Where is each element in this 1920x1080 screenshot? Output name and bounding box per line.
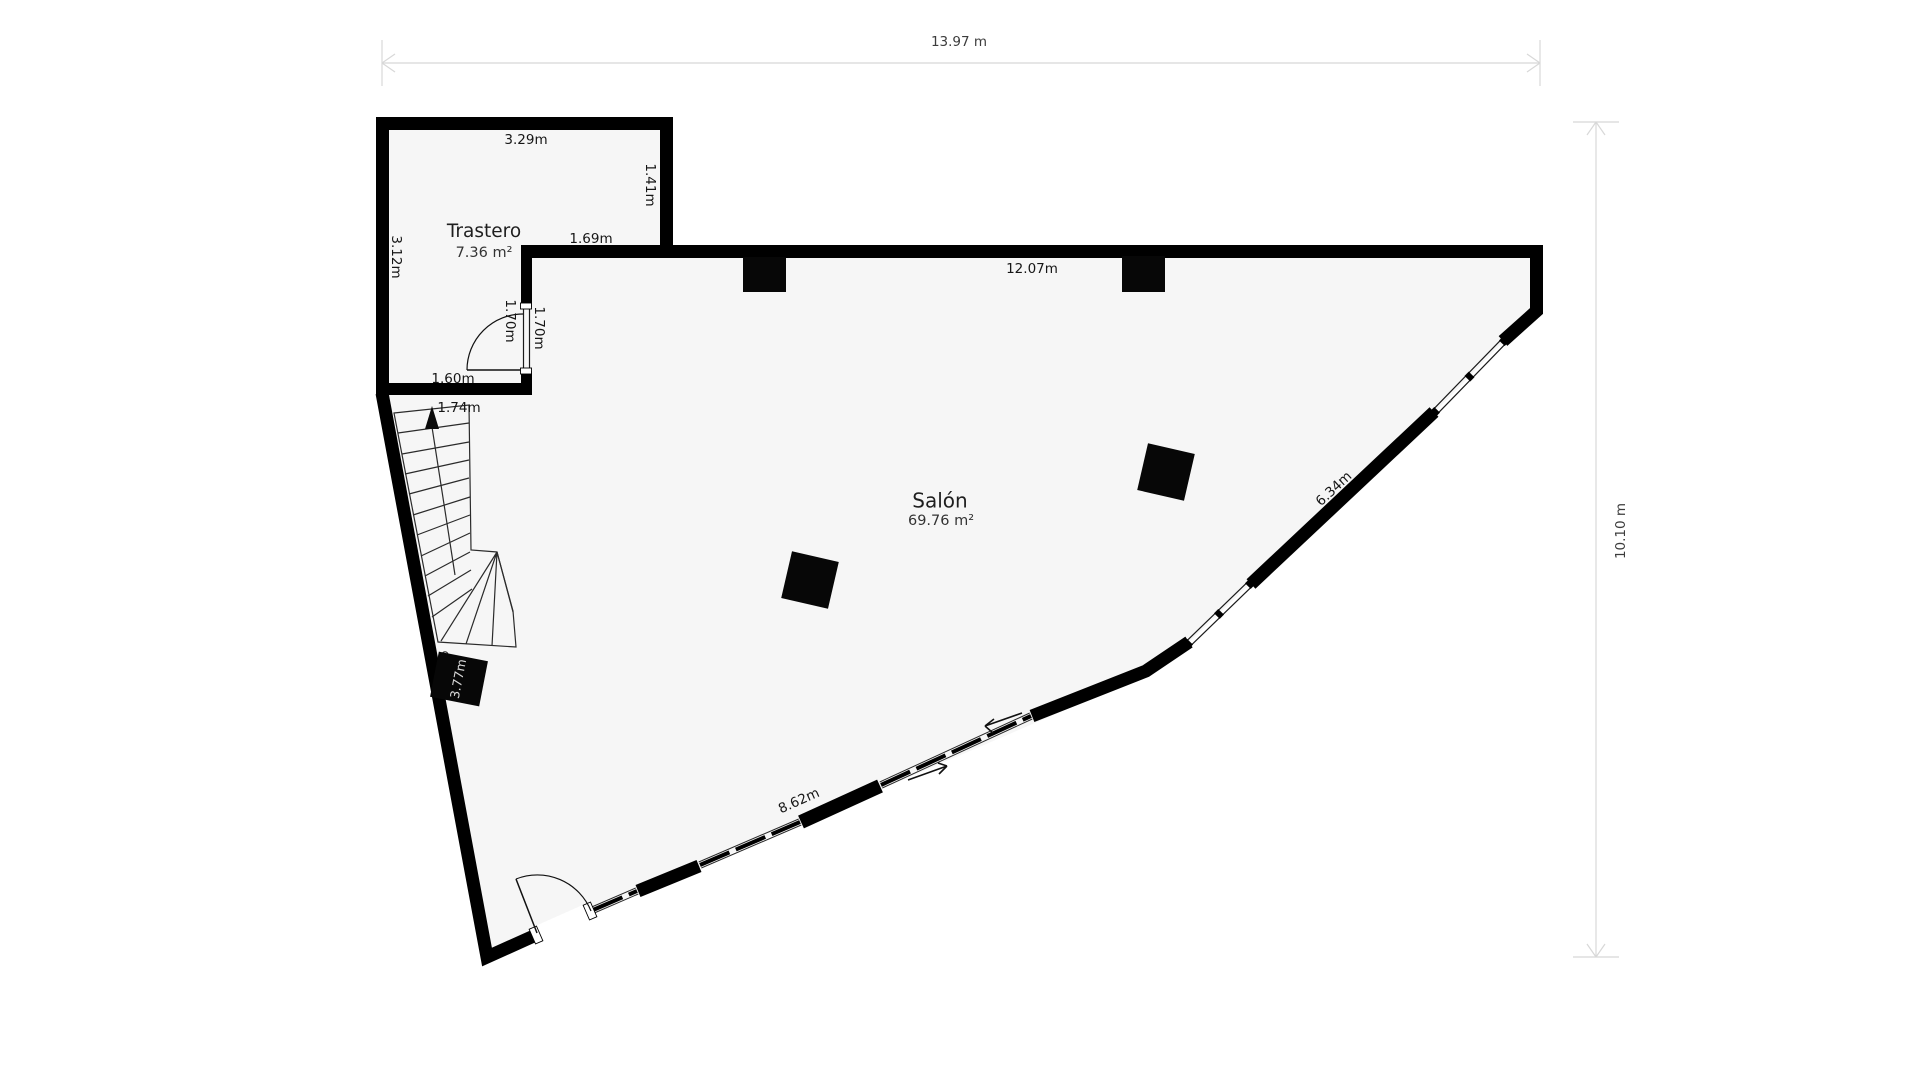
dim-stairs-width: 1.74m [437,400,480,416]
left-wall-pillar: 3.77m [430,652,488,707]
top-wall-pillar-2 [1122,256,1165,292]
dim-overall-width: 13.97 m [931,34,987,50]
dim-overall-height: 10.10 m [1613,503,1629,559]
dim-trastero-bottom: 1.60m [431,371,474,387]
floor-slab [376,117,1543,959]
dim-trastero-left: 3.12m [388,235,404,278]
room-area-trastero: 7.36 m² [456,245,513,261]
room-area-salon: 69.76 m² [908,513,974,529]
dim-door-outer: 1.70m [531,306,547,349]
dim-door-inner: 1.70m [502,299,518,342]
floor-plan: 3.77m 13.97 m 10.10 m Trastero 7.36 m² S… [0,0,1920,1080]
room-name-salon: Salón [912,489,967,513]
room-name-trastero: Trastero [446,221,521,242]
dim-trastero-right: 1.41m [642,163,658,206]
trastero-door-jamb-bottom [521,368,532,374]
dim-trastero-top: 3.29m [504,132,547,148]
dim-partition-top: 1.69m [569,231,612,247]
top-wall-pillar-1 [743,257,786,292]
dim-salon-top: 12.07m [1006,261,1058,277]
trastero-door-jamb-top [521,303,532,309]
